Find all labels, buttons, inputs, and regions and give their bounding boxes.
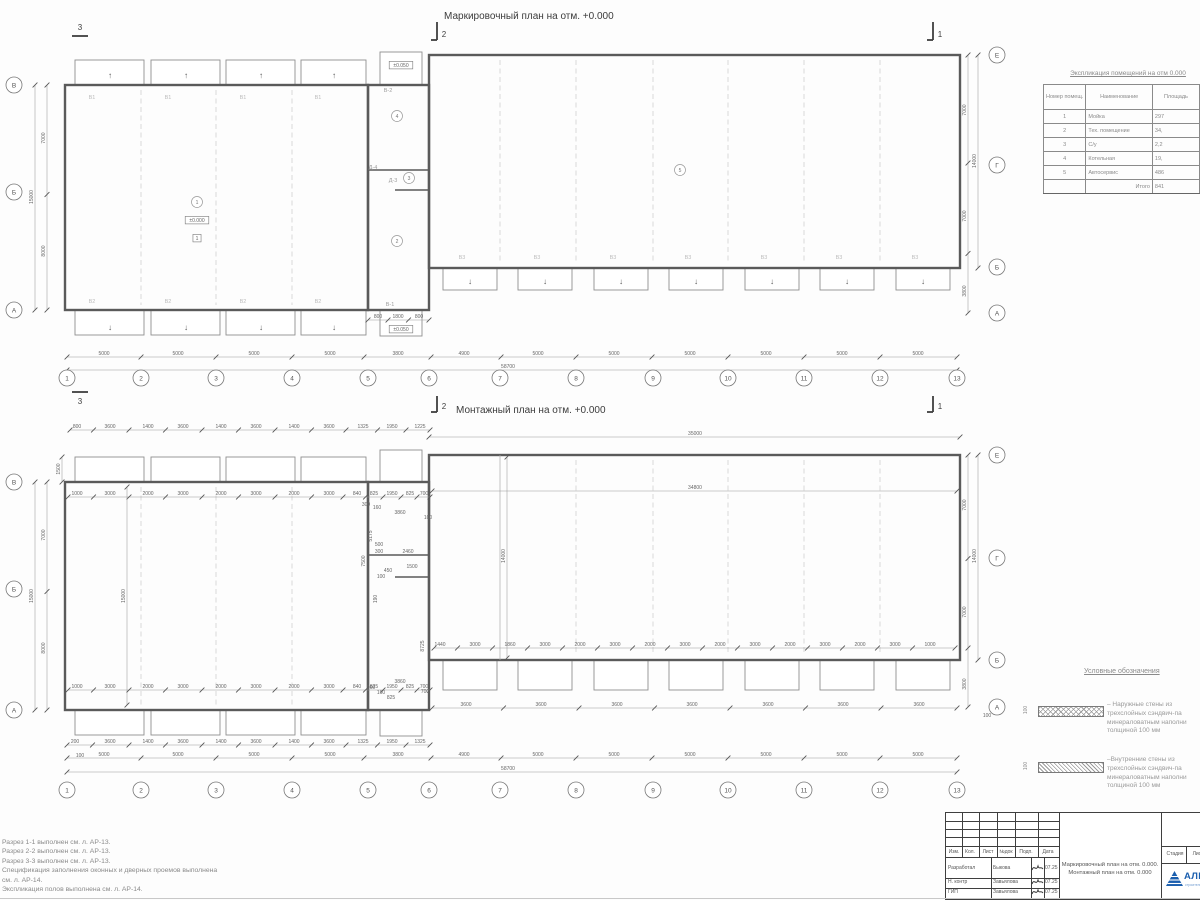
dimension-label: 3000 [104,491,115,497]
drawing-sheet: 5000500050005000380049005000500050005000… [0,0,1200,900]
dimension-label: 3000 [679,642,690,648]
total-label: Итого [1086,180,1153,194]
elevation-label: ±0.050 [393,327,408,333]
exterior-wall-description: – Наружные стены изтрехслойных сэндвич-п… [1107,701,1187,736]
grid-bubble-label: В [12,82,16,89]
building-wall [65,482,368,710]
direction-arrow: ↑ [108,71,112,80]
dimension-label: 190 [373,595,379,604]
dimension-label: 1325 [357,424,368,430]
dimension-label: 14000 [501,549,507,563]
dimension-label: 1400 [288,739,299,745]
direction-arrow: ↑ [184,71,188,80]
elevation-label: ±0.000 [189,218,204,224]
note-line: Разрез 2-2 выполнен см. л. АР-13. [2,847,217,856]
gate-label: В3 [761,255,768,261]
dimension-label: 3000 [749,642,760,648]
section-mark-label: 1 [938,30,943,39]
signer-date: 07.25 [1045,879,1058,885]
dimension-label: 2460 [402,549,413,555]
signature-stroke [1032,866,1043,870]
interior-wall-description: –Внутренние стены изтрехслойных сэндвич-… [1107,756,1187,791]
signature [1031,887,1044,897]
dimension-label: 1325 [414,739,425,745]
dimension-label: 5000 [172,752,183,758]
stage-label: Стадия [1164,851,1186,857]
grid-bubble-label: 9 [651,375,655,382]
note-line: Экспликация полов выполнена см. л. АР-14… [2,885,217,894]
gate-label: В3 [836,255,843,261]
room-number: 1 [1044,110,1086,124]
grid-bubble-label: 11 [801,375,808,382]
room-number-label: 2 [396,239,399,245]
signer-name: Завьялова [993,889,1018,895]
sheet-label: Лист [1188,851,1200,857]
legend-text-line: –Внутренние стены из [1107,756,1187,765]
dimension-label: 3000 [609,642,620,648]
room-name: Мойка [1086,110,1153,124]
direction-arrow: ↓ [619,277,623,286]
door-label: В-2 [384,88,393,94]
direction-arrow: ↓ [332,323,336,332]
dimension-label: 5000 [532,351,543,357]
grid-bubble-label: 2 [139,375,143,382]
dimension-label: 100 [377,574,386,580]
dimension-label: 1000 [924,642,935,648]
gate-bay [301,710,366,735]
interior-wall-thickness: 100 [1023,762,1029,770]
dimension-label: 1400 [142,739,153,745]
revision-col-header: Подп. [1016,849,1036,855]
dimension-label: 5000 [248,351,259,357]
grid-bubble-label: 10 [724,787,732,794]
room-number: 2 [1044,124,1086,138]
room-area: 486 [1152,166,1199,180]
grid-bubble-label: 11 [801,787,808,794]
dimension-label: 100 [983,713,992,719]
gate-bay [896,660,950,690]
gate-label: В1 [240,95,247,101]
sheet-notes: Разрез 1-1 выполнен см. л. АР-13.Разрез … [2,838,217,894]
room-number-label: 4 [396,114,399,120]
dimension-label: 300 [375,549,384,555]
gate-bay [226,457,295,482]
document-title-line2: Монтажный план на отм. 0.000 [1061,869,1159,877]
dimension-label: 5000 [172,351,183,357]
dimension-label: 3000 [104,684,115,690]
grid-bubble-label: Б [995,657,999,664]
dimension-label: 1500 [406,564,417,570]
marking-plan-title: Маркировочный план на отм. +0.000 [444,11,614,22]
gate-label: В3 [912,255,919,261]
dimension-label: 4900 [458,752,469,758]
dimension-label: 160 [377,690,386,696]
dimension-label: 960 [367,685,376,691]
door-label: Д-3 [389,178,398,184]
dimension-label: 3000 [177,684,188,690]
signer-role: Разработал [948,865,975,871]
dimension-label: 1000 [71,684,82,690]
title-block: Изм.Кол.Лист№докПодп.Дата РазработалБыко… [945,812,1200,900]
dimension-label: 1225 [414,424,425,430]
dimension-label: 5000 [324,351,335,357]
grid-bubble-label: 10 [724,375,732,382]
signature [1031,877,1044,887]
dimension-label: 2000 [142,491,153,497]
dimension-label: 1000 [71,491,82,497]
dimension-label: 800 [415,314,424,320]
legend-text-line: толщиной 100 мм [1107,782,1187,791]
dimension-label: 14000 [972,549,978,563]
gate-bay [518,660,572,690]
dimension-label: 5175 [368,530,374,541]
grid-bubble-label: 9 [651,787,655,794]
col-header-number: Номер помещ. [1044,85,1086,110]
dimension-label: 3600 [837,702,848,708]
grid-bubble-label: Е [995,52,1000,59]
room-number: 4 [1044,152,1086,166]
dimension-label: 15000 [29,589,35,603]
grid-bubble-label: 3 [214,375,218,382]
direction-arrow: ↓ [184,323,188,332]
dimension-label: 1325 [357,739,368,745]
dimension-label: 800 [374,314,383,320]
dimension-label: 840 [353,684,362,690]
elevation-label: ±0.050 [393,63,408,69]
dimension-label: 3000 [250,491,261,497]
dimension-label: 7000 [962,210,968,221]
col-header-area: Площадь [1152,85,1199,110]
room-area: 297 [1152,110,1199,124]
gate-bay [745,660,799,690]
grid-bubble-label: Б [12,189,16,196]
grid-bubble-label: 1 [65,787,69,794]
dimension-label: 2000 [288,491,299,497]
grid-bubble-label: В [12,479,16,486]
section-mark-label: 3 [78,397,83,406]
dimension-label: 1950 [386,739,397,745]
explication-row: 2Тех. помещение34, [1044,124,1200,138]
dimension-label: 1440 [434,642,445,648]
dimension-label: 5000 [608,752,619,758]
dimension-label: 8000 [41,642,47,653]
dimension-label: 5000 [532,752,543,758]
dimension-label: 1400 [215,424,226,430]
grid-bubble-label: 8 [574,375,578,382]
dimension-label: 15000 [121,589,127,603]
document-title-line1: Маркировочный план на отм. 0.000. [1061,861,1159,869]
grid-bubble-label: 5 [366,787,370,794]
exterior-wall-thickness: 100 [1023,706,1029,714]
dimension-label: 3600 [611,702,622,708]
gate-bay [75,710,144,735]
room-name: Автосервис [1086,166,1153,180]
dimension-label: 700 [421,689,430,695]
dimension-label: 35000 [688,431,702,437]
gate-label: В2 [165,299,172,305]
dimension-label: 58700 [501,766,515,772]
dimension-label: 3800 [392,752,403,758]
room-area: 2,2 [1152,138,1199,152]
dimension-label: 5000 [912,351,923,357]
dimension-label: 1950 [386,491,397,497]
dimension-label: 300 [362,502,371,508]
gate-label: В2 [315,299,322,305]
gate-bay [380,450,422,482]
room-area: 19, [1152,152,1199,166]
dimension-label: 800 [73,424,82,430]
section-mark-label: 2 [442,402,447,411]
dimension-label: 2000 [714,642,725,648]
note-line: Спецификация заполнения оконных и дверны… [2,866,217,875]
col-header-name: Наименование [1086,85,1153,110]
dimension-label: 3600 [104,739,115,745]
gate-label: В2 [240,299,247,305]
grid-bubble-label: А [995,310,1000,317]
gate-label: В3 [534,255,541,261]
direction-arrow: ↓ [845,277,849,286]
total-empty-cell [1044,180,1086,194]
revision-col-header: Кол. [960,849,980,855]
room-name: Котельная [1086,152,1153,166]
dimension-label: 7000 [962,499,968,510]
grid-bubble-label: 7 [498,375,502,382]
dimension-label: 500 [375,542,384,548]
grid-bubble-label: А [12,707,17,714]
grid-bubble-label: 7 [498,787,502,794]
dimension-label: 5000 [608,351,619,357]
dimension-label: 3600 [177,739,188,745]
dimension-label: 1860 [504,642,515,648]
dimension-label: 3000 [323,491,334,497]
company-logo-icon [1166,871,1183,886]
room-number: 3 [1044,138,1086,152]
dimension-label: 3000 [250,684,261,690]
room-number-label: 1 [196,200,199,206]
legend-text-line: трехслойных сэндвич-па [1107,765,1187,774]
grid-bubble-label: Г [995,162,999,169]
dimension-label: 5000 [836,351,847,357]
gate-label: В3 [685,255,692,261]
explication-row: 3С/у2,2 [1044,138,1200,152]
direction-arrow: ↑ [332,71,336,80]
dimension-label: 3600 [686,702,697,708]
grid-bubble-label: 13 [953,375,961,382]
dimension-label: 2000 [288,684,299,690]
plan-drawing: 5000500050005000380049005000500050005000… [0,0,1200,900]
dimension-label: 5000 [684,752,695,758]
grid-bubble-label: 5 [366,375,370,382]
grid-bubble-label: 8 [574,787,578,794]
dimension-label: 3600 [460,702,471,708]
explication-header-row: Номер помещ. Наименование Площадь [1044,85,1200,110]
room-number: 5 [1044,166,1086,180]
signer-date: 07.25 [1045,865,1058,871]
dimension-label: 7000 [41,529,47,540]
legend-text-line: толщиной 100 мм [1107,727,1187,736]
signature-stroke [1032,880,1043,884]
gate-label: В1 [165,95,172,101]
gate-bay [669,660,723,690]
dimension-label: 100 [424,515,433,521]
gate-label: В1 [89,95,96,101]
direction-arrow: ↓ [770,277,774,286]
note-line: см. л. АР-14. [2,876,217,885]
legend-text-line: трехслойных сэндвич-па [1107,710,1187,719]
dimension-label: 3860 [394,679,405,685]
gate-bay [594,660,648,690]
legend-title: Условные обозначения [1084,668,1160,675]
interior-wall-symbol [1038,762,1104,773]
revision-col-header: Лист [978,849,998,855]
direction-arrow: ↓ [921,277,925,286]
grid-bubble-label: 4 [290,375,294,382]
dimension-label: 3600 [762,702,773,708]
grid-bubble-label: Г [995,555,999,562]
room-number-label: 3 [408,176,411,182]
door-label: Д-4 [369,165,378,171]
dimension-label: 7000 [962,606,968,617]
dimension-label: 2000 [644,642,655,648]
dimension-label: 700 [420,491,429,497]
dimension-label: 2000 [854,642,865,648]
room-name: Тех. помещение [1086,124,1153,138]
dimension-label: 3600 [250,739,261,745]
dimension-label: 2000 [215,491,226,497]
dimension-label: 200 [71,739,80,745]
note-line: Разрез 3-3 выполнен см. л. АР-13. [2,857,217,866]
dimension-label: 3600 [177,424,188,430]
dimension-label: 3000 [889,642,900,648]
dimension-label: 2000 [142,684,153,690]
grid-bubble-label: 6 [427,787,431,794]
dimension-label: 4900 [458,351,469,357]
dimension-label: 58700 [501,364,515,370]
direction-arrow: ↑ [259,71,263,80]
dimension-label: 3000 [469,642,480,648]
assembly-plan-title: Монтажный план на отм. +0.000 [456,405,606,416]
dimension-label: 3600 [250,424,261,430]
explication-total-row: Итого 841 [1044,180,1200,194]
explication-row: 5Автосервис486 [1044,166,1200,180]
gate-label: В1 [315,95,322,101]
company-name: АЛЬЯ [1184,871,1200,882]
dimension-label: 2000 [215,684,226,690]
gate-label: В2 [89,299,96,305]
grid-bubble-label: 12 [876,375,884,382]
dimension-label: 5000 [248,752,259,758]
dimension-label: 840 [353,491,362,497]
grid-bubble-label: 2 [139,787,143,794]
revision-col-header: Дата [1038,849,1058,855]
direction-arrow: ↓ [108,323,112,332]
dimension-label: 3860 [394,510,405,516]
legend-text-line: – Наружные стены из [1107,701,1187,710]
dimension-label: 2000 [784,642,795,648]
dimension-label: 3600 [104,424,115,430]
grid-bubble-label: Б [12,586,16,593]
dimension-label: 7000 [41,132,47,143]
gate-bay [301,457,366,482]
signature [1031,863,1044,873]
dimension-label: 3600 [323,739,334,745]
direction-arrow: ↓ [543,277,547,286]
section-mark-label: 3 [78,23,83,32]
dimension-label: 5000 [760,351,771,357]
gate-bay [226,710,295,735]
direction-arrow: ↓ [468,277,472,286]
grid-bubble-label: 6 [427,375,431,382]
dimension-label: 1400 [142,424,153,430]
dimension-label: 825 [370,491,379,497]
dimension-label: 1950 [386,684,397,690]
signer-date: 07.25 [1045,889,1058,895]
dimension-label: 2000 [574,642,585,648]
dimension-label: 7500 [361,555,367,566]
dimension-label: 3800 [962,285,968,296]
dimension-label: 3000 [539,642,550,648]
grid-bubble-label: А [12,307,17,314]
dimension-label: 825 [406,684,415,690]
grid-bubble-label: А [995,704,1000,711]
room-number-label: 5 [679,168,682,174]
dimension-label: 825 [387,695,396,701]
elevation-label: 1 [196,236,199,242]
gate-bay [443,660,497,690]
gate-label: В3 [459,255,466,261]
dimension-label: 3600 [323,424,334,430]
grid-bubble-label: 3 [214,787,218,794]
room-name: С/у [1086,138,1153,152]
dimension-label: 5000 [98,351,109,357]
note-line: Разрез 1-1 выполнен см. л. АР-13. [2,838,217,847]
dimension-label: 100 [76,753,85,759]
dimension-label: 3800 [392,351,403,357]
gate-bay [151,457,220,482]
grid-bubble-label: 1 [65,375,69,382]
sheet-frame-bottom [0,898,1200,899]
gate-label: В3 [610,255,617,261]
dimension-label: 5000 [836,752,847,758]
grid-bubble-label: 13 [953,787,961,794]
explication-row: 4Котельная19, [1044,152,1200,166]
section-mark-label: 1 [938,402,943,411]
gate-bay [75,457,144,482]
door-label: В-1 [386,302,395,308]
signer-role: Н. контр [948,879,967,885]
dimension-label: 1400 [288,424,299,430]
dimension-label: 3600 [535,702,546,708]
dimension-label: 1400 [215,739,226,745]
dimension-label: 1800 [392,314,403,320]
dimension-label: 160 [373,505,382,511]
dimension-label: 7000 [962,104,968,115]
dimension-label: 3600 [913,702,924,708]
dimension-label: 14000 [972,154,978,168]
gate-bay [151,710,220,735]
dimension-label: 3000 [819,642,830,648]
gate-bay [820,660,874,690]
dimension-label: 5000 [912,752,923,758]
company-subtitle: строительн [1185,883,1200,887]
grid-bubble-label: Е [995,452,1000,459]
section-mark-label: 2 [442,30,447,39]
dimension-label: 8725 [420,640,426,651]
revision-col-header: №док [996,849,1016,855]
dimension-label: 5000 [324,752,335,758]
dimension-label: 1500 [56,463,62,474]
grid-bubble-label: 4 [290,787,294,794]
